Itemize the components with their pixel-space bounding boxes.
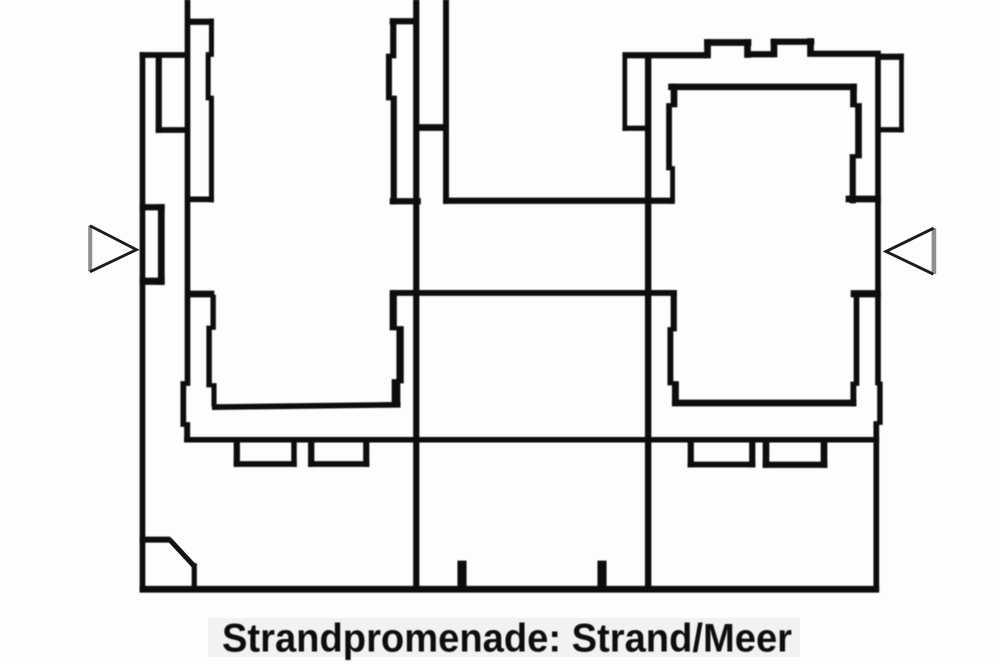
- svg-text:Strandpromenade: Strand/Meer: Strandpromenade: Strand/Meer: [222, 617, 792, 661]
